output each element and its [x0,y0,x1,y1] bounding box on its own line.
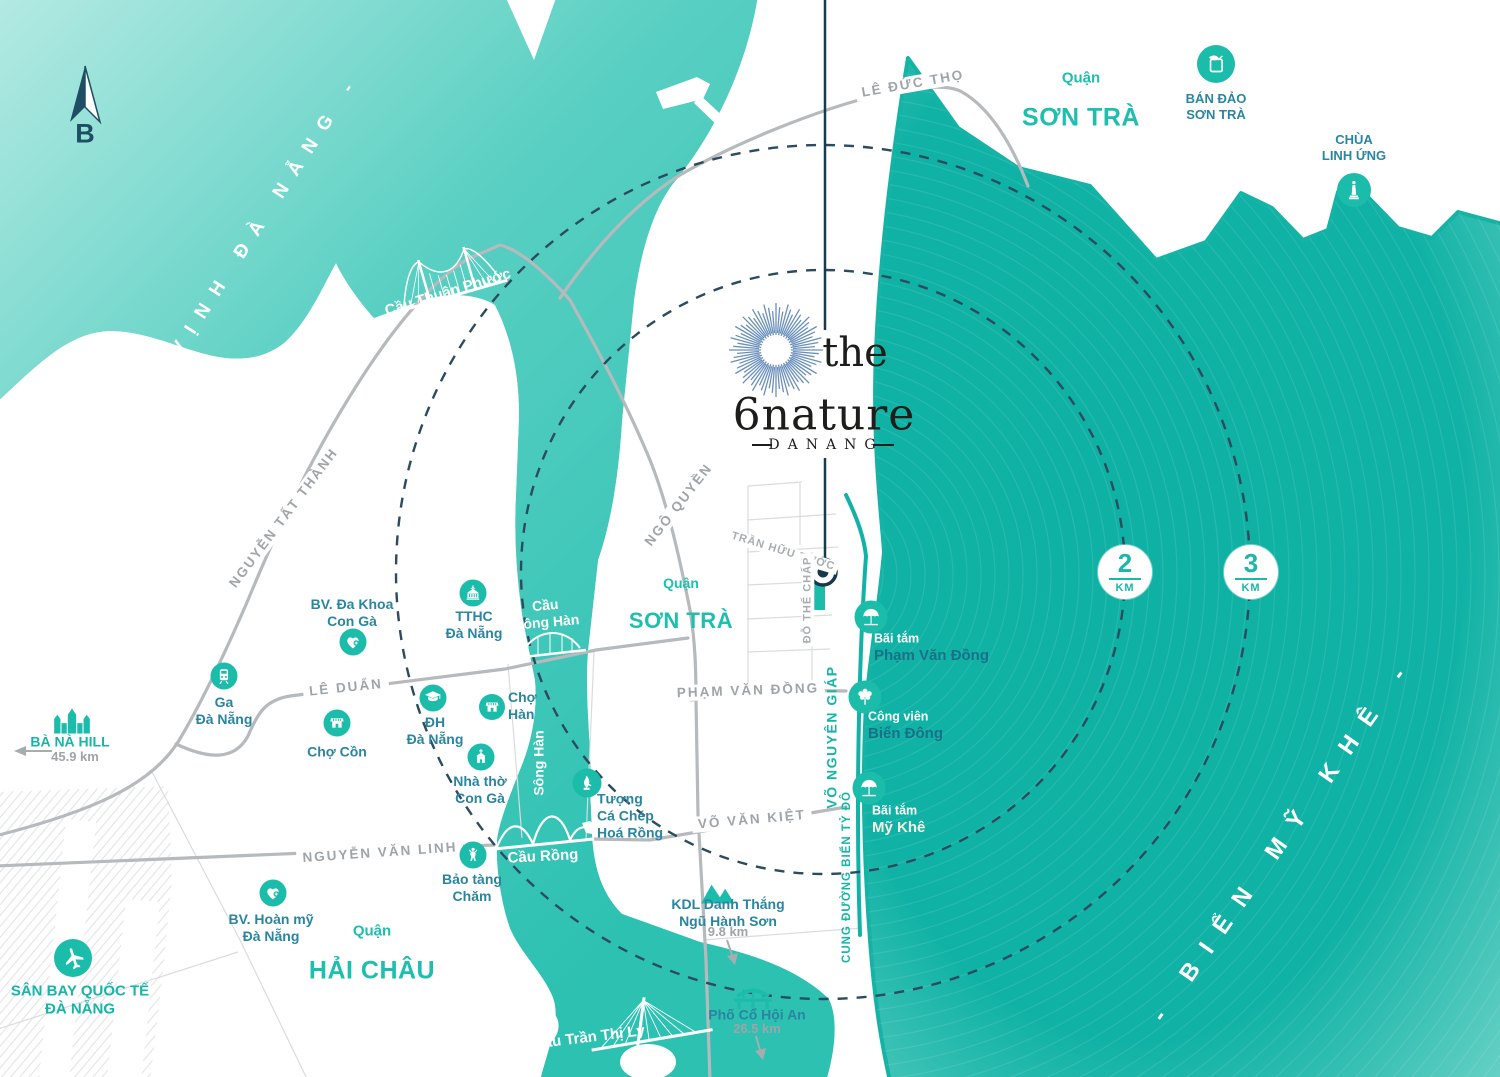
district-hai-chau: Quận HẢI CHÂU [309,906,435,1003]
beach-pvd-type: Bãi tắm [874,631,919,646]
poi-tuong-ca-chep: Tượng Cá Chép Hoá Rồng [597,790,663,841]
poi-bao-tang-cham: Bảo tàng Chăm [442,871,502,905]
beach-umbrella-icon [859,605,882,628]
pagoda-icon [1342,178,1366,202]
graduation-cap-icon [424,689,443,708]
river-name-label: Sông Hàn [530,730,547,795]
poi-bv-da-khoa: BV. Đa Khoa Con Gà [311,596,394,630]
poi-ba-na: BÀ NÀ HILL [30,733,109,750]
poi-chua-linh-ung: CHÙA LINH ỨNG [1322,132,1386,164]
government-building-icon [464,584,483,603]
poi-ba-na-distance: 45.9 km [51,749,99,765]
road-vo-nguyen-giap: VÕ NGUYÊN GIÁP [823,659,840,814]
poi-cho-con: Chợ Cồn [307,743,367,760]
church-icon [472,748,491,767]
radius-badge-2km: 2 KM [1098,545,1152,599]
compass-north-label: B [75,119,95,150]
beach-pvd-icon [855,601,888,634]
market-icon [328,714,347,733]
logo-word-the: the [822,330,888,376]
cho-han-icon [479,694,505,720]
road-cung-duong-bien-ty-do: CUNG ĐƯỜNG BIỂN TỶ ĐÔ [840,785,854,969]
project-logo: the 6nature DANANG [690,325,940,465]
poi-cho-han: Chợ Hàn [508,689,537,723]
bridge-rong-label: Cầu Rồng [507,846,579,868]
poi-ban-dao-son-tra: BÁN ĐẢO SƠN TRÀ [1186,91,1247,123]
poi-ga-da-nang: Ga Đà Nẵng [196,694,253,728]
beach-umbrella-icon [857,776,880,799]
danang-location-map: - VỊNH ĐÀ NẴNG - - BIỂN MỸ KHÊ - Sông Hà… [0,0,1500,1077]
poi-ngu-hanh-son-distance: 9.8 km [708,924,748,940]
carp-statue-icon [577,773,597,793]
pagoda-circle-icon [1337,173,1371,207]
logo-city: DANANG [760,437,883,453]
radius-badge-3km: 3 KM [1224,545,1278,599]
park-tree-icon [853,685,876,708]
castle-towers-icon [51,706,93,734]
heart-plus-icon [344,633,363,652]
peninsula-leaf-icon [1203,51,1230,78]
beach-my-khe-name: Mỹ Khê [872,819,925,837]
poi-san-bay: SÂN BAY QUỐC TẾ ĐÀ NẴNG [11,983,149,1020]
poi-hoi-an-distance: 26.5 km [733,1021,781,1037]
peninsula-icon [1197,45,1235,83]
bridge-song-han-label: Cầu Sông Hàn [512,594,580,634]
district-son-tra-top: Quận SƠN TRÀ [1022,53,1140,150]
cathedral-icon [468,744,495,771]
cham-statue-icon [464,846,483,865]
beach-my-khe-icon [853,772,886,805]
road-do-the-chap: ĐỖ THẾ CHẤP [801,554,814,647]
beach-my-khe-type: Bãi tắm [872,803,917,818]
beach-pvd-name: Phạm Văn Đồng [874,647,989,665]
market-icon [483,698,501,716]
train-station-icon [211,663,238,690]
hoan-my-hospital-icon [260,880,287,907]
poi-bv-hoan-my: BV. Hoàn mỹ Đà Nẵng [228,911,313,945]
poi-tthc: TTHC Đà Nẵng [446,608,503,642]
hospital-icon [340,629,367,656]
airport-icon [54,939,92,977]
university-icon [420,685,447,712]
poi-dh-da-nang: ĐH Đà Nẵng [407,714,464,748]
logo-word-6nature: 6nature [733,390,916,441]
logo-dash-right [874,444,894,446]
logo-dash-left [752,444,772,446]
park-bien-dong-name: Biển Đông [868,725,943,743]
airport-area [0,786,172,1077]
train-icon [215,667,234,686]
cham-museum-icon [460,842,487,869]
park-bien-dong-type: Công viên [868,709,928,724]
poi-nha-tho-con-ga: Nhà thờ Con Gà [453,773,507,807]
admin-center-icon [460,580,487,607]
heart-plus-icon [264,884,283,903]
cho-con-icon [324,710,351,737]
plane-icon [56,941,90,975]
district-son-tra-center: Quận SƠN TRÀ [629,558,733,650]
